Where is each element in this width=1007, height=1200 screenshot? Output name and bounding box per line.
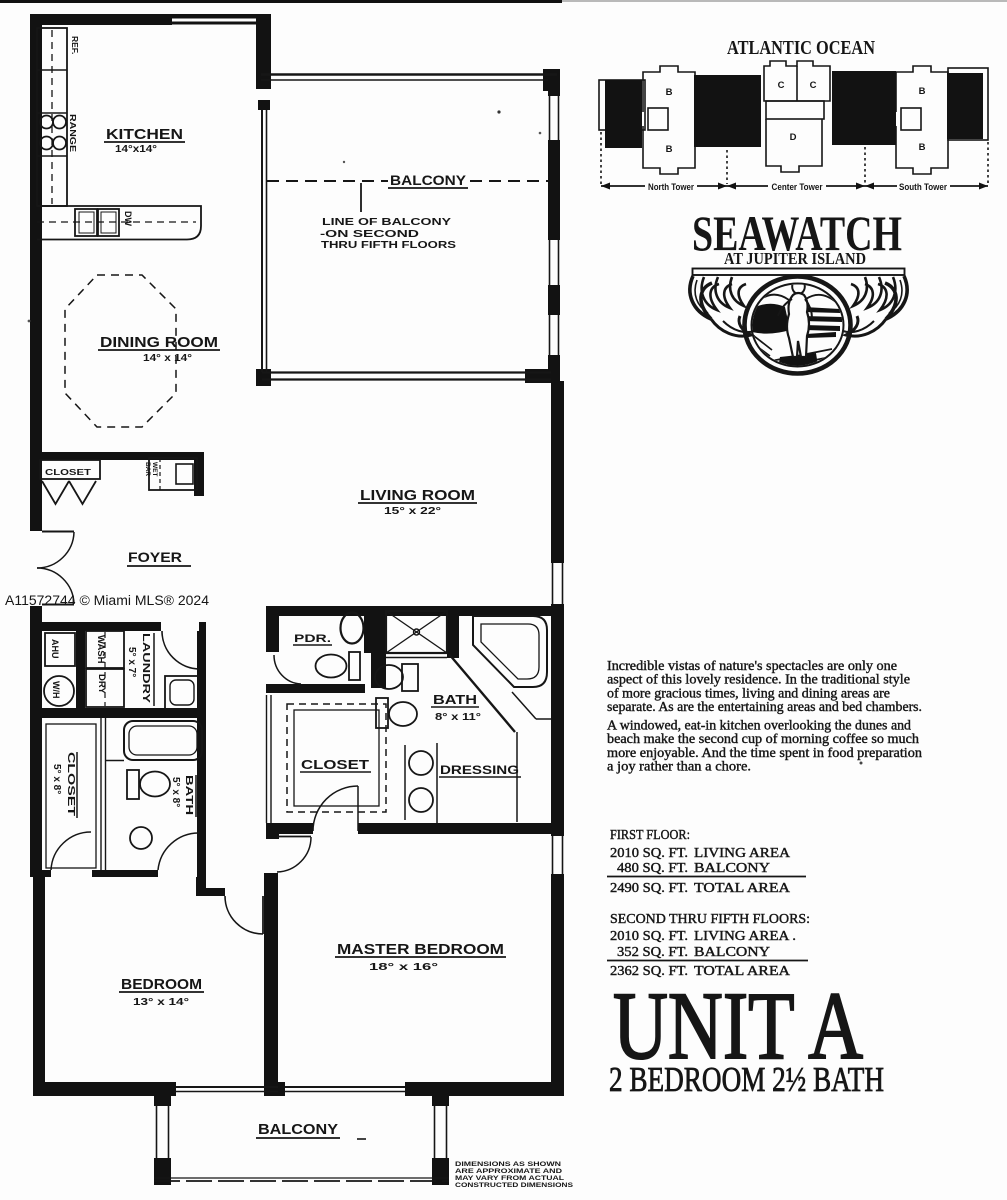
svg-text:Center Tower: Center Tower (772, 182, 823, 192)
svg-text:8° x 11°: 8° x 11° (435, 711, 481, 723)
svg-text:2 BEDROOM 2½ BATH: 2 BEDROOM 2½ BATH (609, 1060, 884, 1099)
svg-text:BALCONY: BALCONY (694, 944, 771, 959)
svg-text:BATH: BATH (183, 775, 194, 815)
svg-text:LINE OF BALCONY: LINE OF BALCONY (322, 216, 451, 228)
svg-text:A11572744 © Miami MLS® 2024: A11572744 © Miami MLS® 2024 (5, 593, 209, 608)
svg-text:5° x 7°: 5° x 7° (126, 647, 137, 677)
svg-text:AT JUPITER ISLAND: AT JUPITER ISLAND (724, 249, 866, 268)
svg-text:14°x14°: 14°x14° (115, 143, 157, 155)
svg-text:TOTAL AREA: TOTAL AREA (694, 880, 791, 895)
svg-text:separate. As are the entertain: separate. As are the entertaining areas … (607, 699, 922, 714)
svg-text:352 SQ. FT.: 352 SQ. FT. (617, 944, 688, 959)
svg-text:W/H: W/H (51, 681, 61, 699)
svg-text:C: C (810, 80, 817, 91)
svg-text:SECOND THRU FIFTH FLOORS:: SECOND THRU FIFTH FLOORS: (610, 911, 810, 926)
svg-text:DW: DW (123, 211, 133, 226)
svg-text:B: B (666, 144, 673, 155)
svg-text:PDR.: PDR. (294, 633, 331, 645)
svg-text:MASTER BEDROOM: MASTER BEDROOM (337, 941, 504, 958)
svg-text:WASH: WASH (95, 635, 106, 664)
svg-text:KITCHEN: KITCHEN (106, 126, 183, 143)
svg-text:5° x 8°: 5° x 8° (51, 764, 62, 794)
svg-text:North Tower: North Tower (648, 182, 694, 192)
svg-text:18° x 16°: 18° x 16° (369, 961, 438, 973)
svg-text:B: B (919, 142, 926, 153)
svg-text:LIVING ROOM: LIVING ROOM (360, 487, 475, 504)
svg-text:2490 SQ. FT.: 2490 SQ. FT. (610, 880, 688, 895)
svg-text:MAY VARY FROM ACTUAL: MAY VARY FROM ACTUAL (455, 1175, 564, 1182)
svg-text:THRU FIFTH FLOORS: THRU FIFTH FLOORS (321, 239, 456, 251)
svg-text:2010 SQ. FT.: 2010 SQ. FT. (610, 928, 688, 943)
svg-text:LAUNDRY: LAUNDRY (140, 633, 151, 703)
svg-text:ATLANTIC OCEAN: ATLANTIC OCEAN (727, 38, 875, 59)
svg-text:FOYER: FOYER (128, 549, 182, 565)
svg-text:D: D (790, 132, 797, 143)
svg-text:BALCONY: BALCONY (694, 860, 771, 875)
svg-text:B: B (919, 86, 926, 97)
svg-text:South Tower: South Tower (899, 182, 947, 192)
svg-text:REF.: REF. (70, 36, 80, 54)
svg-text:DRY: DRY (96, 674, 107, 694)
svg-text:LIVING AREA .: LIVING AREA . (694, 928, 796, 943)
svg-text:BALCONY: BALCONY (390, 172, 467, 188)
svg-text:BEDROOM: BEDROOM (121, 976, 202, 993)
svg-text:5° x 8°: 5° x 8° (170, 777, 181, 807)
svg-text:DRESSING: DRESSING (440, 765, 519, 777)
svg-text:B: B (666, 87, 673, 98)
svg-text:CLOSET: CLOSET (301, 758, 369, 772)
svg-text:LIVING AREA: LIVING AREA (694, 845, 791, 860)
svg-text:CLOSET: CLOSET (45, 468, 91, 477)
svg-text:FIRST FLOOR:: FIRST FLOOR: (610, 827, 690, 842)
svg-text:ARE APPROXIMATE AND: ARE APPROXIMATE AND (455, 1168, 562, 1175)
svg-text:CLOSET: CLOSET (65, 752, 76, 816)
svg-text:a joy rather than a chore.: a joy rather than a chore. (607, 759, 751, 774)
svg-text:BALCONY: BALCONY (258, 1122, 338, 1138)
svg-text:13° x 14°: 13° x 14° (133, 996, 189, 1008)
svg-text:2010 SQ. FT.: 2010 SQ. FT. (610, 845, 688, 860)
svg-text:14° x 14°: 14° x 14° (143, 352, 192, 364)
svg-text:480 SQ. FT.: 480 SQ. FT. (617, 860, 688, 875)
svg-text:C: C (778, 80, 785, 91)
svg-text:WET: WET (151, 462, 158, 476)
svg-text:15° x 22°: 15° x 22° (384, 505, 441, 517)
svg-text:RANGE: RANGE (68, 114, 78, 152)
svg-text:BAR: BAR (144, 462, 151, 476)
svg-text:DIMENSIONS AS SHOWN: DIMENSIONS AS SHOWN (455, 1161, 561, 1168)
svg-text:AHU: AHU (50, 639, 60, 659)
svg-text:DINING ROOM: DINING ROOM (100, 334, 218, 351)
svg-text:BATH: BATH (433, 692, 477, 707)
svg-text:CONSTRUCTED DIMENSIONS: CONSTRUCTED DIMENSIONS (455, 1182, 574, 1189)
